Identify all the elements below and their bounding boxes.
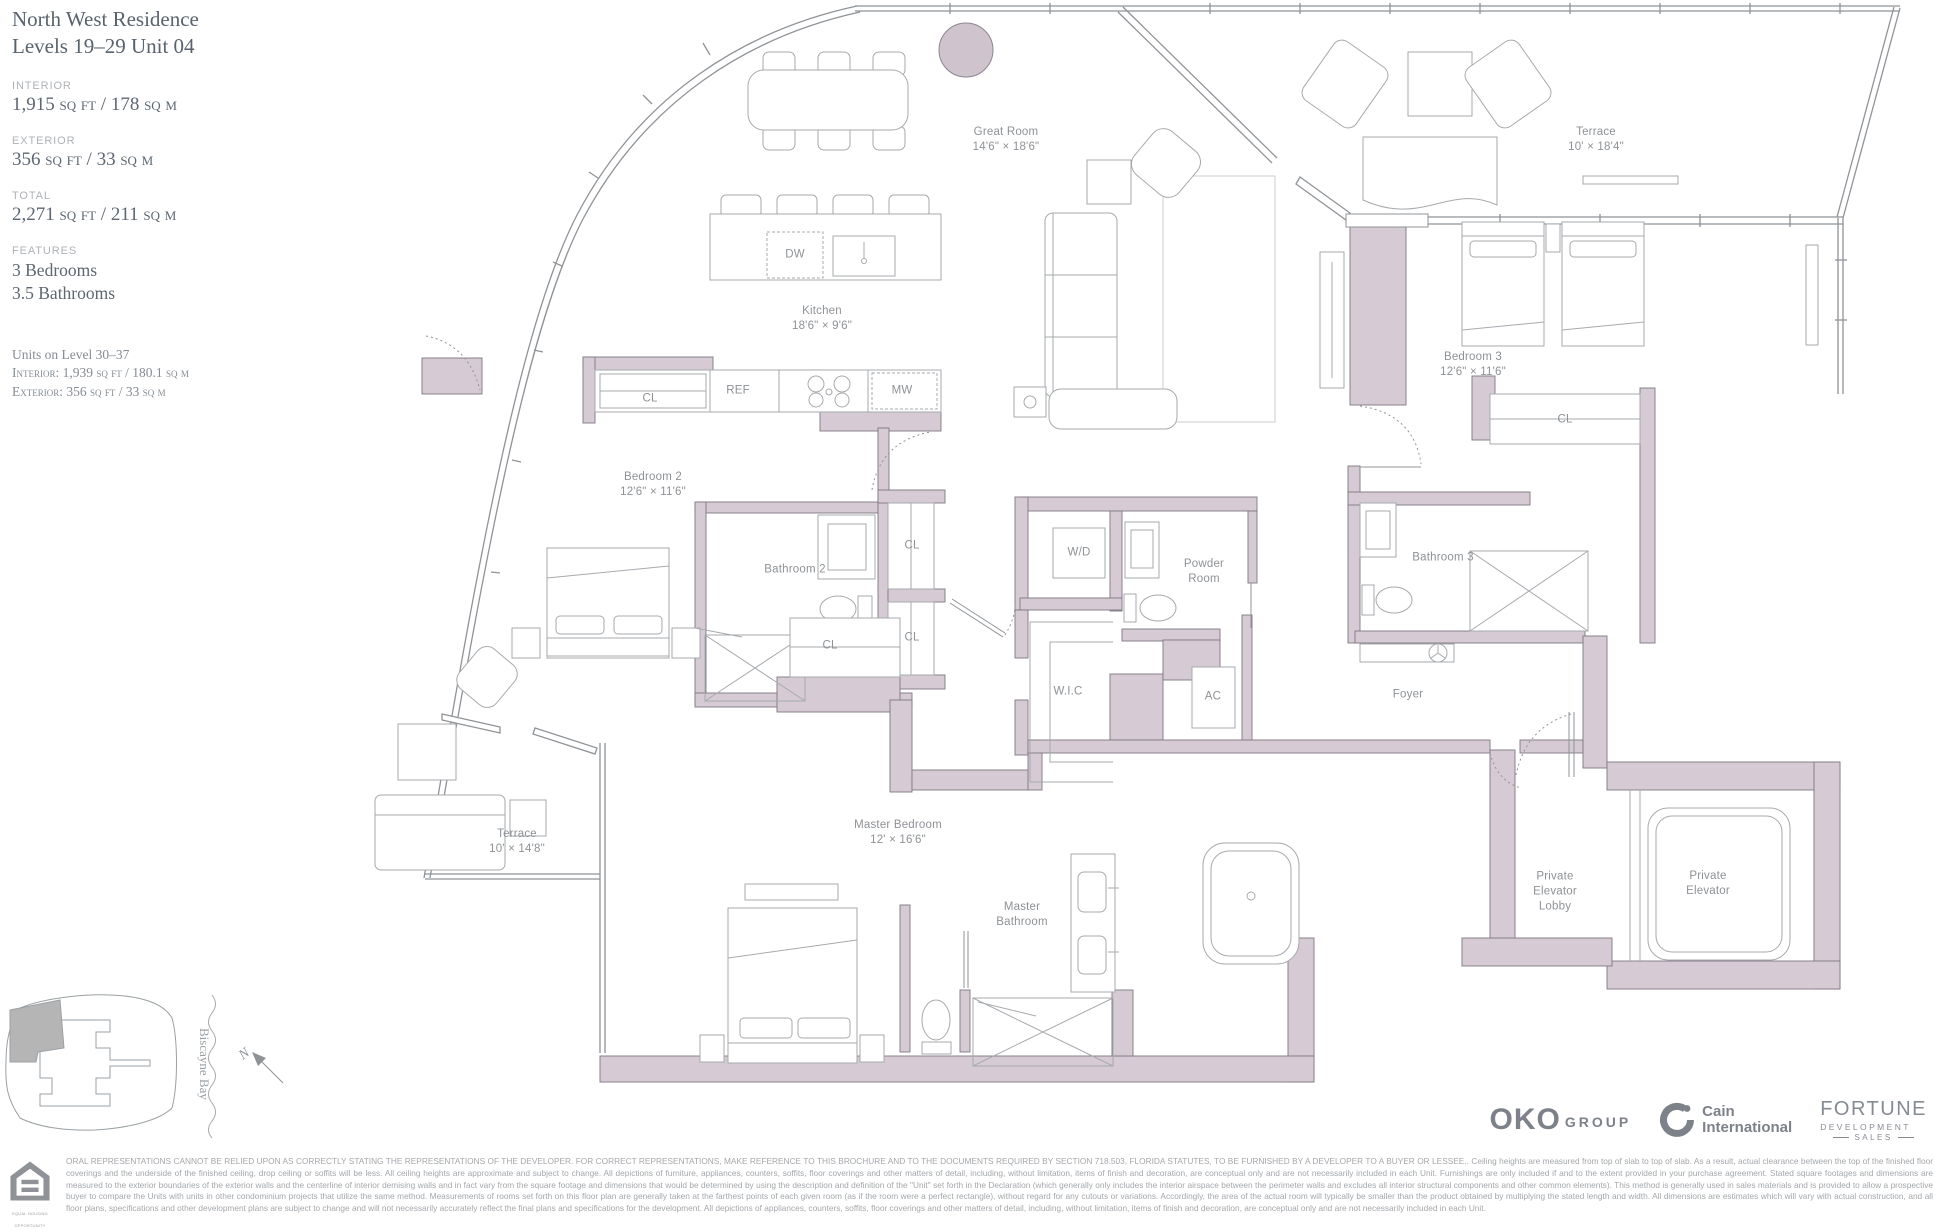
room-label-wic: W.I.C	[1053, 685, 1082, 700]
bedroom2-furniture	[512, 548, 700, 658]
label-closet-kitchen: CL	[642, 392, 657, 407]
unit-highlight	[10, 1000, 64, 1062]
floor-plan-svg: Biscayne Bay N	[0, 0, 1935, 1230]
cain-circle-icon	[1659, 1102, 1695, 1138]
room-label-private-elevator: Private Elevator	[1686, 869, 1730, 899]
room-label-master-bathroom: Master Bathroom	[996, 900, 1047, 930]
label-closet-master: CL	[822, 639, 837, 654]
room-label-ac: AC	[1205, 690, 1221, 705]
room-label-terrace-ne: Terrace10' × 18'4"	[1568, 125, 1624, 155]
label-microwave: MW	[892, 384, 913, 399]
room-label-bedroom3: Bedroom 312'6" × 11'6"	[1440, 350, 1506, 380]
room-label-bathroom3: Bathroom 3	[1412, 551, 1473, 566]
master-terrace-door	[533, 728, 597, 754]
label-refrigerator: REF	[726, 384, 750, 399]
disclaimer-caps: ORAL REPRESENTATIONS CANNOT BE RELIED UP…	[66, 1156, 1469, 1166]
kitchen-island	[710, 195, 941, 280]
fortune-development-logo: FORTUNE DEVELOPMENT SALES	[1820, 1098, 1927, 1142]
equal-housing-logo: EQUAL HOUSING OPPORTUNITY	[2, 1159, 58, 1230]
bedroom3-furniture	[1462, 222, 1818, 346]
label-dishwasher: DW	[785, 248, 805, 263]
room-label-great-room: Great Room14'6" × 18'6"	[973, 125, 1040, 155]
great-room-furniture	[1014, 123, 1344, 429]
master-closet	[790, 618, 900, 677]
north-arrow	[252, 1052, 283, 1083]
room-label-bathroom2: Bathroom 2	[764, 563, 825, 578]
bay-label: Biscayne Bay	[197, 1028, 212, 1100]
shaft-cap	[1346, 214, 1428, 227]
room-label-foyer: Foyer	[1393, 688, 1423, 703]
label-closet-hall-2: CL	[904, 631, 919, 646]
room-label-terrace-sw: Terrace10' × 14'8"	[489, 827, 545, 857]
room-label-washer-dryer: W/D	[1068, 546, 1091, 561]
structural-column	[939, 23, 993, 77]
label-closet-bedroom3: CL	[1557, 413, 1572, 428]
master-bathroom-fixtures	[922, 843, 1299, 1066]
room-label-master-bedroom: Master Bedroom12' × 16'6"	[854, 818, 942, 848]
floorplan-page: North West Residence Levels 19–29 Unit 0…	[0, 0, 1935, 1230]
cain-international-logo: CainInternational	[1659, 1102, 1792, 1138]
room-label-bedroom2: Bedroom 212'6" × 11'6"	[620, 470, 686, 500]
foyer-console	[1360, 644, 1454, 662]
room-label-private-elevator-lobby: Private Elevator Lobby	[1533, 870, 1577, 915]
developer-logos: OKOGROUP CainInternational FORTUNE DEVEL…	[1489, 1098, 1927, 1142]
dining-set	[748, 52, 908, 150]
equal-housing-icon	[5, 1159, 55, 1203]
bathroom3-fixtures	[1360, 503, 1588, 631]
label-closet-hall-1: CL	[904, 539, 919, 554]
key-plan: Biscayne Bay N	[6, 995, 283, 1138]
room-label-powder-room: Powder Room	[1184, 557, 1224, 587]
master-bedroom-furniture	[700, 884, 884, 1063]
north-label: N	[235, 1045, 253, 1064]
oko-group-logo: OKOGROUP	[1489, 1103, 1631, 1137]
terrace-door-panel	[1296, 177, 1350, 220]
terrace-tr-furniture	[1298, 36, 1678, 209]
furniture-layer	[375, 23, 1818, 1066]
legal-disclaimer: EQUAL HOUSING OPPORTUNITY ORAL REPRESENT…	[0, 1156, 1933, 1230]
room-label-kitchen: Kitchen18'6" × 9'6"	[792, 304, 852, 334]
